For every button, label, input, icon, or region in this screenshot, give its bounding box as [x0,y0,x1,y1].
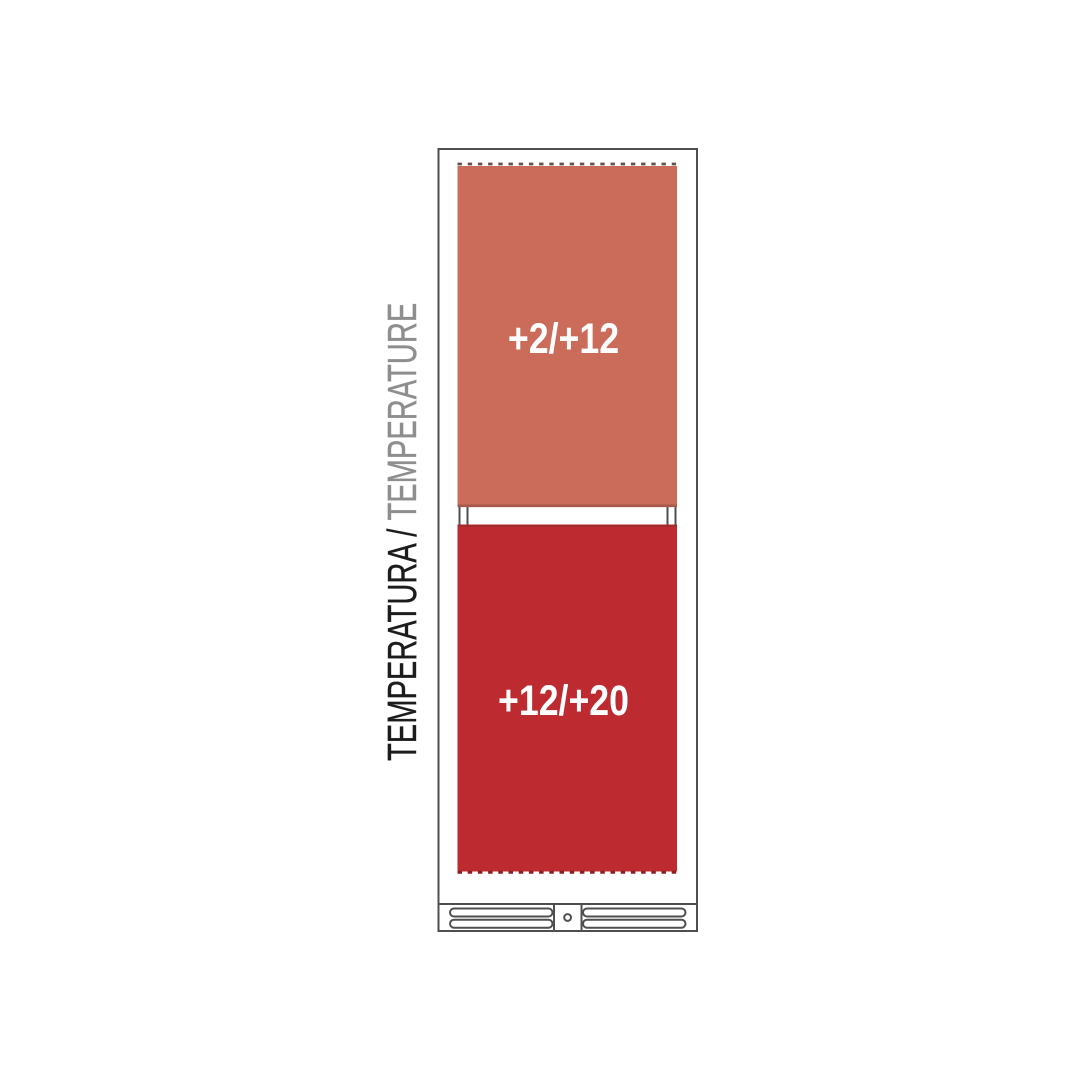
svg-text:TEMPERATURA / TEMPERATURE: TEMPERATURA / TEMPERATURE [379,303,425,761]
svg-text:+12/+20: +12/+20 [498,677,629,725]
svg-text:+2/+12: +2/+12 [508,315,619,363]
